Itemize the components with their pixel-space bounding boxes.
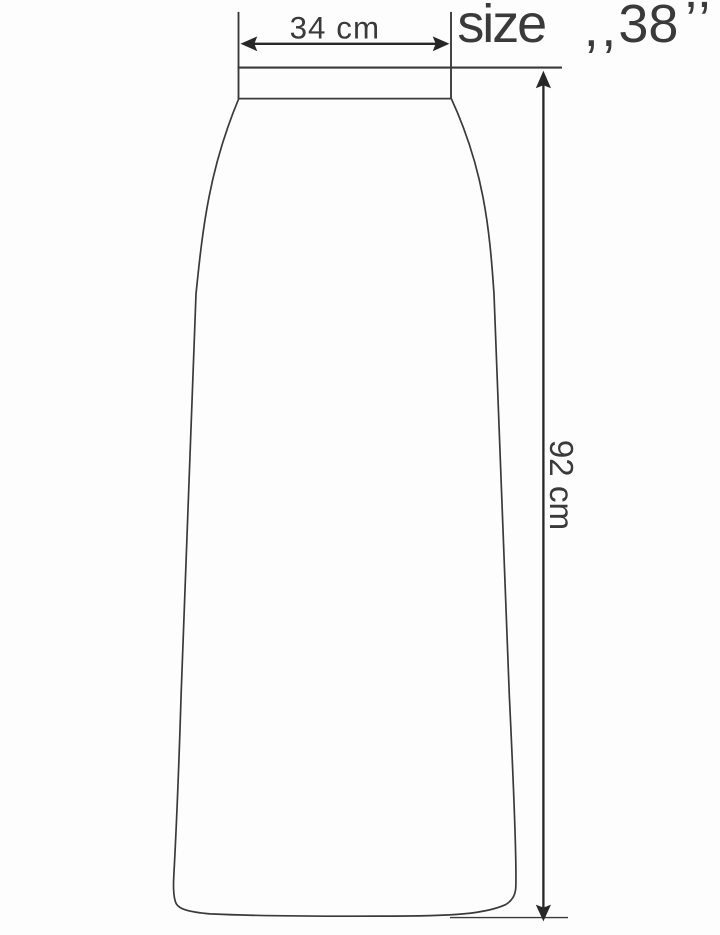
svg-text:size: size [457,0,545,54]
svg-text:34 cm: 34 cm [290,11,380,46]
svg-text:’’: ’’ [685,0,713,51]
svg-text:92 cm: 92 cm [542,440,579,530]
svg-text:,,: ,, [584,0,619,58]
svg-text:38: 38 [618,0,678,54]
